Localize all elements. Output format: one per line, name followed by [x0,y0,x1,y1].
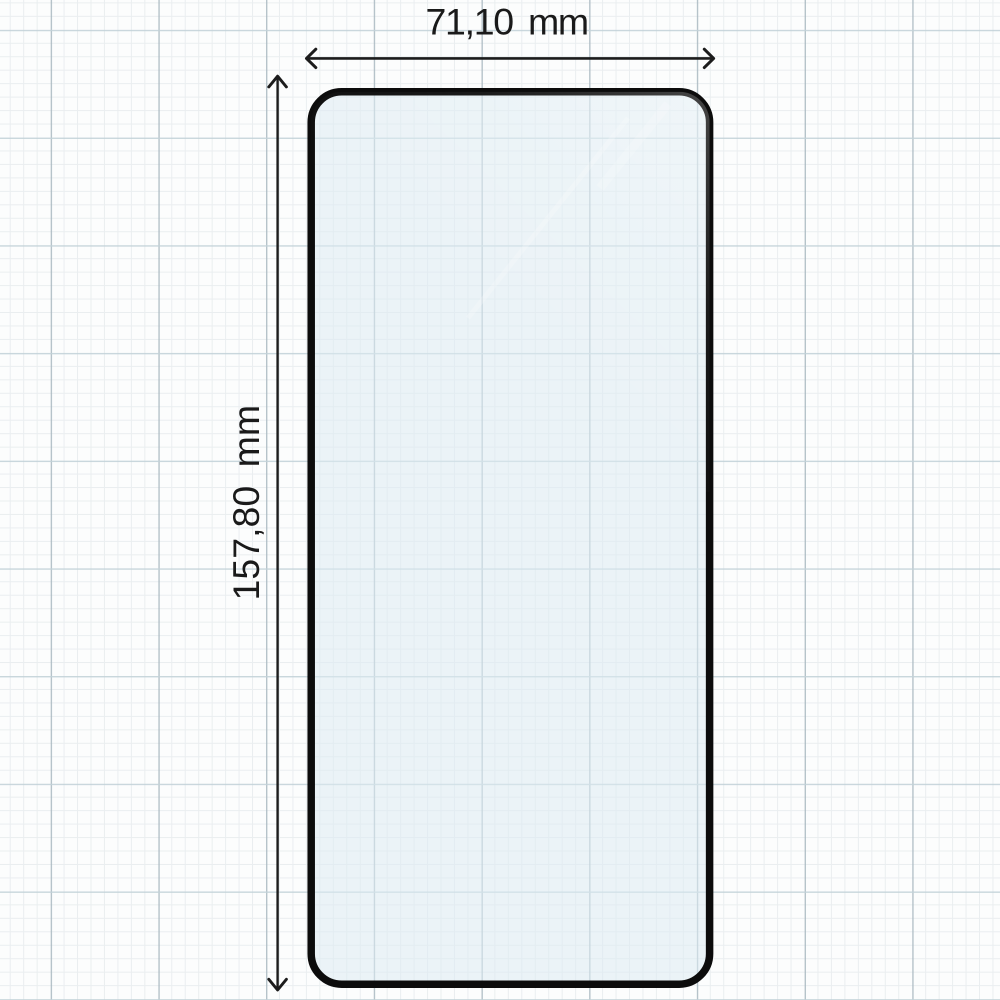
svg-text:157,80 mm: 157,80 mm [225,405,267,601]
svg-text:71,10 mm: 71,10 mm [426,0,588,42]
